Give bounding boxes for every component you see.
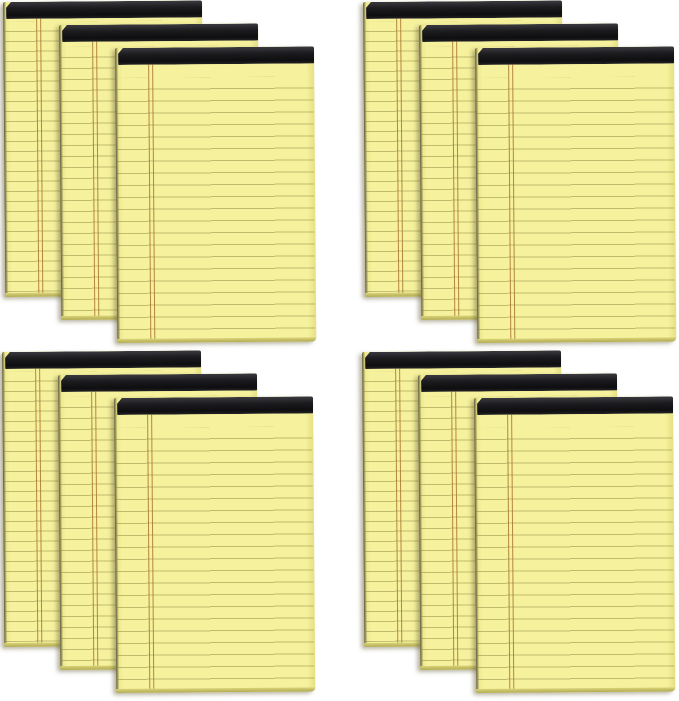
pad-stack-bottom-right: [362, 352, 678, 698]
product-image-canvas: [0, 0, 679, 701]
pad-binding-strip: [6, 0, 202, 19]
pad-binding-strip: [477, 396, 673, 415]
pad-bottom-page-edge: [116, 687, 315, 693]
pad-stack-top-right: [363, 2, 679, 348]
pad-binding-strip: [62, 23, 258, 42]
pad-binding-strip: [365, 350, 561, 369]
legal-pad-front: [115, 46, 316, 343]
pad-binding-strip: [117, 396, 313, 415]
legal-pad-front: [474, 396, 675, 693]
pad-binding-strip: [422, 23, 618, 42]
pad-ruled-lines: [115, 426, 314, 688]
pad-binding-strip: [5, 350, 201, 369]
pad-binding-strip: [366, 0, 562, 19]
pad-ruled-lines: [475, 426, 674, 688]
pad-stack-bottom-left: [2, 352, 318, 698]
pad-bottom-page-edge: [476, 687, 675, 693]
pad-binding-strip: [61, 373, 257, 392]
pad-bottom-page-edge: [117, 337, 316, 343]
pad-binding-strip: [478, 46, 674, 65]
pad-ruled-lines: [476, 76, 675, 338]
pad-bottom-page-edge: [477, 337, 676, 343]
pad-binding-strip: [118, 46, 314, 65]
legal-pad-front: [114, 396, 315, 693]
pad-stack-top-left: [3, 2, 319, 348]
pad-binding-strip: [421, 373, 617, 392]
pad-ruled-lines: [116, 76, 315, 338]
legal-pad-front: [475, 46, 676, 343]
